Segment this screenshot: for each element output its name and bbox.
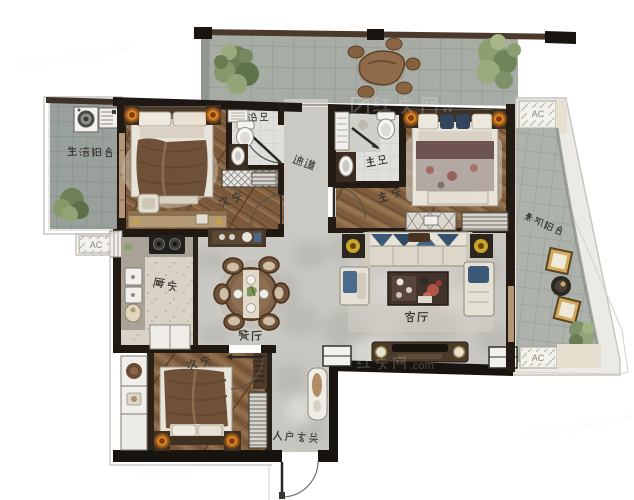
svg-text:W: W: [442, 101, 454, 115]
svg-text:AC: AC: [90, 240, 103, 250]
svg-text:AC: AC: [532, 353, 545, 363]
svg-text:.com: .com: [410, 360, 434, 372]
svg-text:AC: AC: [532, 109, 545, 119]
